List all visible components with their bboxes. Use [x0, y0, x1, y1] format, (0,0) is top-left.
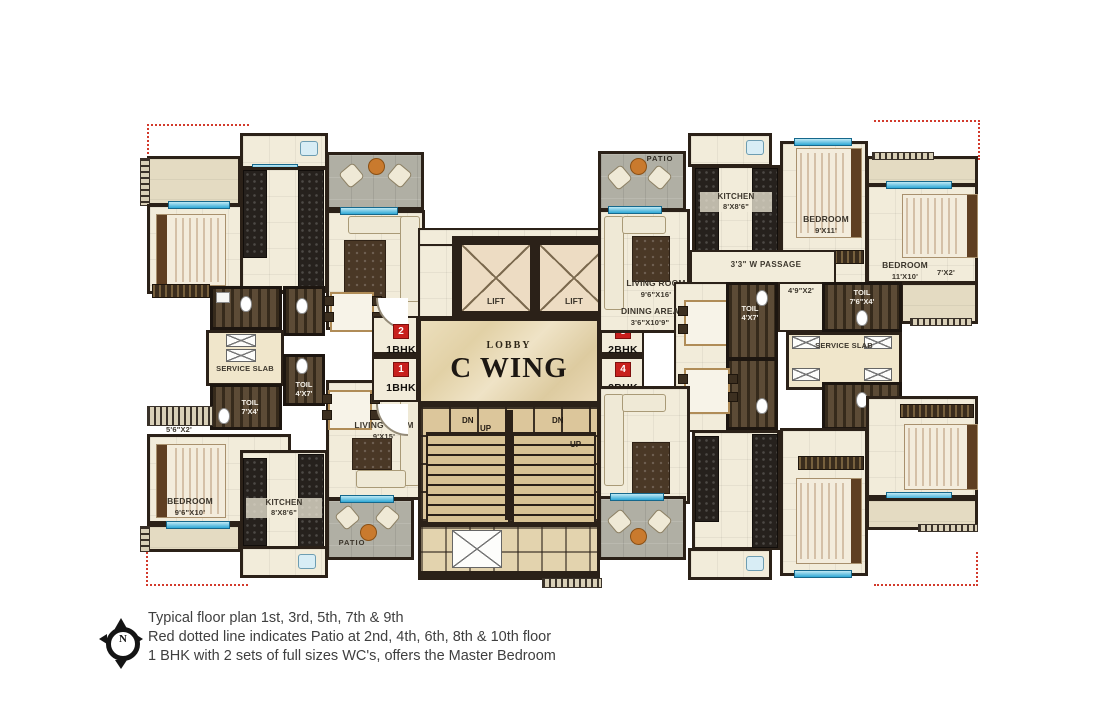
toilet-dim: 7'X4' — [242, 407, 259, 416]
toilet-label: TOIL 7'6"X4' — [838, 288, 886, 306]
patio-table — [368, 158, 385, 175]
stair-flight-left — [426, 432, 510, 524]
room-dim: 8'X8'6" — [271, 508, 297, 517]
corridor-lift-side — [418, 244, 454, 318]
patio-dotted-line — [147, 124, 249, 126]
louver-box — [792, 368, 820, 381]
rug — [344, 240, 386, 298]
kitchen-counter — [695, 436, 719, 522]
patio-dotted-line — [146, 552, 148, 586]
window — [340, 495, 394, 503]
sofa — [348, 216, 406, 234]
stair-landing — [418, 524, 600, 574]
room-name: KITCHEN — [718, 192, 755, 201]
room-dim: 9'X15' — [373, 432, 395, 441]
bed — [902, 194, 978, 258]
note-line-2: Red dotted line indicates Patio at 2nd, … — [148, 629, 551, 645]
toilet-name: TOIL — [242, 398, 259, 407]
bed — [796, 478, 862, 564]
window — [794, 570, 852, 578]
railing — [918, 524, 978, 532]
bed-blanket — [175, 218, 221, 282]
room-name: KITCHEN — [266, 498, 303, 507]
toilet-dim: 4'X7' — [296, 389, 313, 398]
note-line-1: Typical floor plan 1st, 3rd, 5th, 7th & … — [148, 610, 404, 626]
stairs-dn-label: DN — [552, 416, 564, 425]
balcony-railing-left — [147, 406, 213, 426]
sofa — [604, 394, 624, 486]
wc-icon — [296, 358, 308, 374]
toilet-name: TOIL — [742, 304, 759, 313]
railing — [140, 526, 150, 552]
wc-icon — [240, 296, 252, 312]
unit-type: 2BHK — [608, 344, 638, 356]
railing — [542, 578, 602, 588]
unit-type: 1BHK — [386, 344, 416, 356]
window — [886, 181, 952, 189]
sofa — [400, 216, 420, 302]
sofa — [622, 216, 666, 234]
kitchen-counter — [298, 170, 324, 290]
unit-type: 1BHK — [386, 382, 416, 394]
compass-icon: N — [99, 618, 143, 666]
sofa — [622, 394, 666, 412]
wing-title: C WING — [418, 352, 600, 385]
patio-table — [630, 528, 647, 545]
patio-dotted-line — [874, 584, 978, 586]
dining-chair — [324, 296, 334, 306]
unit-marker-1: 1 1BHK — [384, 362, 418, 396]
room-dim: 9'X11' — [815, 226, 837, 235]
room-dim: 9'6"X10' — [175, 508, 205, 517]
toilet-name: TOIL — [854, 288, 871, 297]
bed-headboard — [967, 425, 977, 489]
bed-blanket — [908, 428, 962, 486]
unit-marker-2: 2 1BHK — [384, 324, 418, 358]
room-dim: 3'6"X10'9" — [631, 318, 670, 327]
passage-label: 3'3" W PASSAGE — [706, 260, 826, 270]
lift-label: LIFT — [460, 296, 532, 306]
washbasin-icon — [300, 141, 318, 156]
stair-flight-right — [512, 432, 596, 524]
unit-number: 4 — [615, 362, 631, 377]
kitchen-label: KITCHEN 8'X8'6" — [246, 498, 322, 518]
bedroom-label: BEDROOM 9'X11' — [790, 214, 862, 235]
stairs-dn-label: DN — [462, 416, 474, 425]
louver-box — [226, 334, 256, 347]
toilet-dim: 7'6"X4' — [850, 297, 875, 306]
room-name: DINING AREA — [621, 306, 679, 316]
window — [608, 206, 662, 214]
compass-n-label: N — [106, 633, 153, 645]
dining-chair — [322, 410, 332, 420]
service-slab-label: SERVICE SLAB — [208, 364, 282, 373]
bed — [904, 424, 978, 490]
toilet-label: TOIL 4'X7' — [728, 304, 772, 322]
room-dim: 9'6"X16' — [641, 290, 671, 299]
washbasin-icon — [746, 556, 764, 571]
window — [340, 207, 398, 215]
note-line-3: 1 BHK with 2 sets of full sizes WC's, of… — [148, 648, 556, 664]
lobby-label: LOBBY — [418, 340, 600, 351]
stair-divider-wall — [505, 410, 513, 520]
washbasin-icon — [298, 554, 316, 569]
window — [794, 138, 852, 146]
unit-number: 1 — [393, 362, 409, 377]
room-name: BEDROOM — [167, 496, 213, 506]
rug — [632, 442, 670, 494]
dining-chair — [324, 312, 334, 322]
dining-table — [684, 300, 730, 346]
wc-icon — [856, 310, 868, 326]
bed-headboard — [157, 215, 167, 285]
balcony-dim-label: 5'6"X2' — [147, 425, 211, 434]
bed-headboard — [967, 195, 977, 257]
railing — [872, 152, 934, 160]
dining-chair — [728, 392, 738, 402]
railing — [910, 318, 972, 326]
bed — [156, 214, 226, 286]
patio-label: PATIO — [330, 538, 374, 547]
bed-blanket — [800, 483, 846, 559]
toilet-dim: 4'X7' — [742, 313, 759, 322]
kitchen-counter — [752, 434, 778, 548]
wc-icon — [756, 398, 768, 414]
rug — [352, 438, 392, 470]
balcony-top-left — [147, 156, 241, 206]
rug — [632, 236, 670, 282]
wardrobe — [798, 456, 864, 470]
bed-headboard — [851, 479, 861, 563]
louver-box — [226, 349, 256, 362]
toilet-label: TOIL 4'X7' — [284, 380, 324, 398]
railing — [140, 158, 150, 206]
window — [166, 521, 230, 529]
dining-table — [684, 368, 730, 414]
sofa — [356, 470, 406, 488]
washbasin-icon — [746, 140, 764, 155]
room-name: BEDROOM — [803, 214, 849, 224]
patio-dotted-line — [146, 584, 248, 586]
toilet-label: TOIL 7'X4' — [228, 398, 272, 416]
wc-icon — [296, 298, 308, 314]
dining-chair — [322, 394, 332, 404]
louver-box — [864, 368, 892, 381]
stairs-up-label: UP — [570, 440, 581, 449]
compass-south-tick — [115, 660, 127, 669]
patio-dotted-line — [976, 552, 978, 586]
dining-chair — [678, 324, 688, 334]
bed-blanket — [906, 198, 962, 254]
patio-dotted-line — [978, 120, 980, 160]
room-name: BEDROOM — [882, 260, 928, 270]
service-slab-label: SERVICE SLAB — [800, 341, 888, 350]
unit-number: 2 — [393, 324, 409, 339]
dining-chair — [728, 374, 738, 384]
room-dim: 8'X8'6" — [723, 202, 749, 211]
kitchen-label: KITCHEN 8'X8'6" — [700, 192, 772, 212]
dining-table — [330, 292, 374, 332]
floor-plan: SERVICE SLAB TOIL 7'X4' TOIL 4'X7' 5'6"X… — [0, 0, 1115, 725]
toilet-name: TOIL — [296, 380, 313, 389]
stairs-up-label: UP — [480, 424, 491, 433]
window — [610, 493, 664, 501]
dining-chair — [678, 374, 688, 384]
duct-box — [452, 530, 502, 568]
passage-dim-label: 4'9"X2' — [779, 286, 823, 295]
balcony-dim-label: 7'X2' — [926, 268, 966, 277]
patio-dotted-line — [874, 120, 980, 122]
room-dim: 11'X10' — [892, 272, 918, 281]
bedroom-label: BEDROOM 9'6"X10' — [148, 496, 232, 517]
wardrobe — [152, 284, 210, 298]
window — [168, 201, 230, 209]
patio-table — [630, 158, 647, 175]
kitchen-counter — [243, 170, 267, 258]
dining-chair — [678, 306, 688, 316]
sink-icon — [216, 292, 230, 303]
wardrobe — [900, 404, 974, 418]
